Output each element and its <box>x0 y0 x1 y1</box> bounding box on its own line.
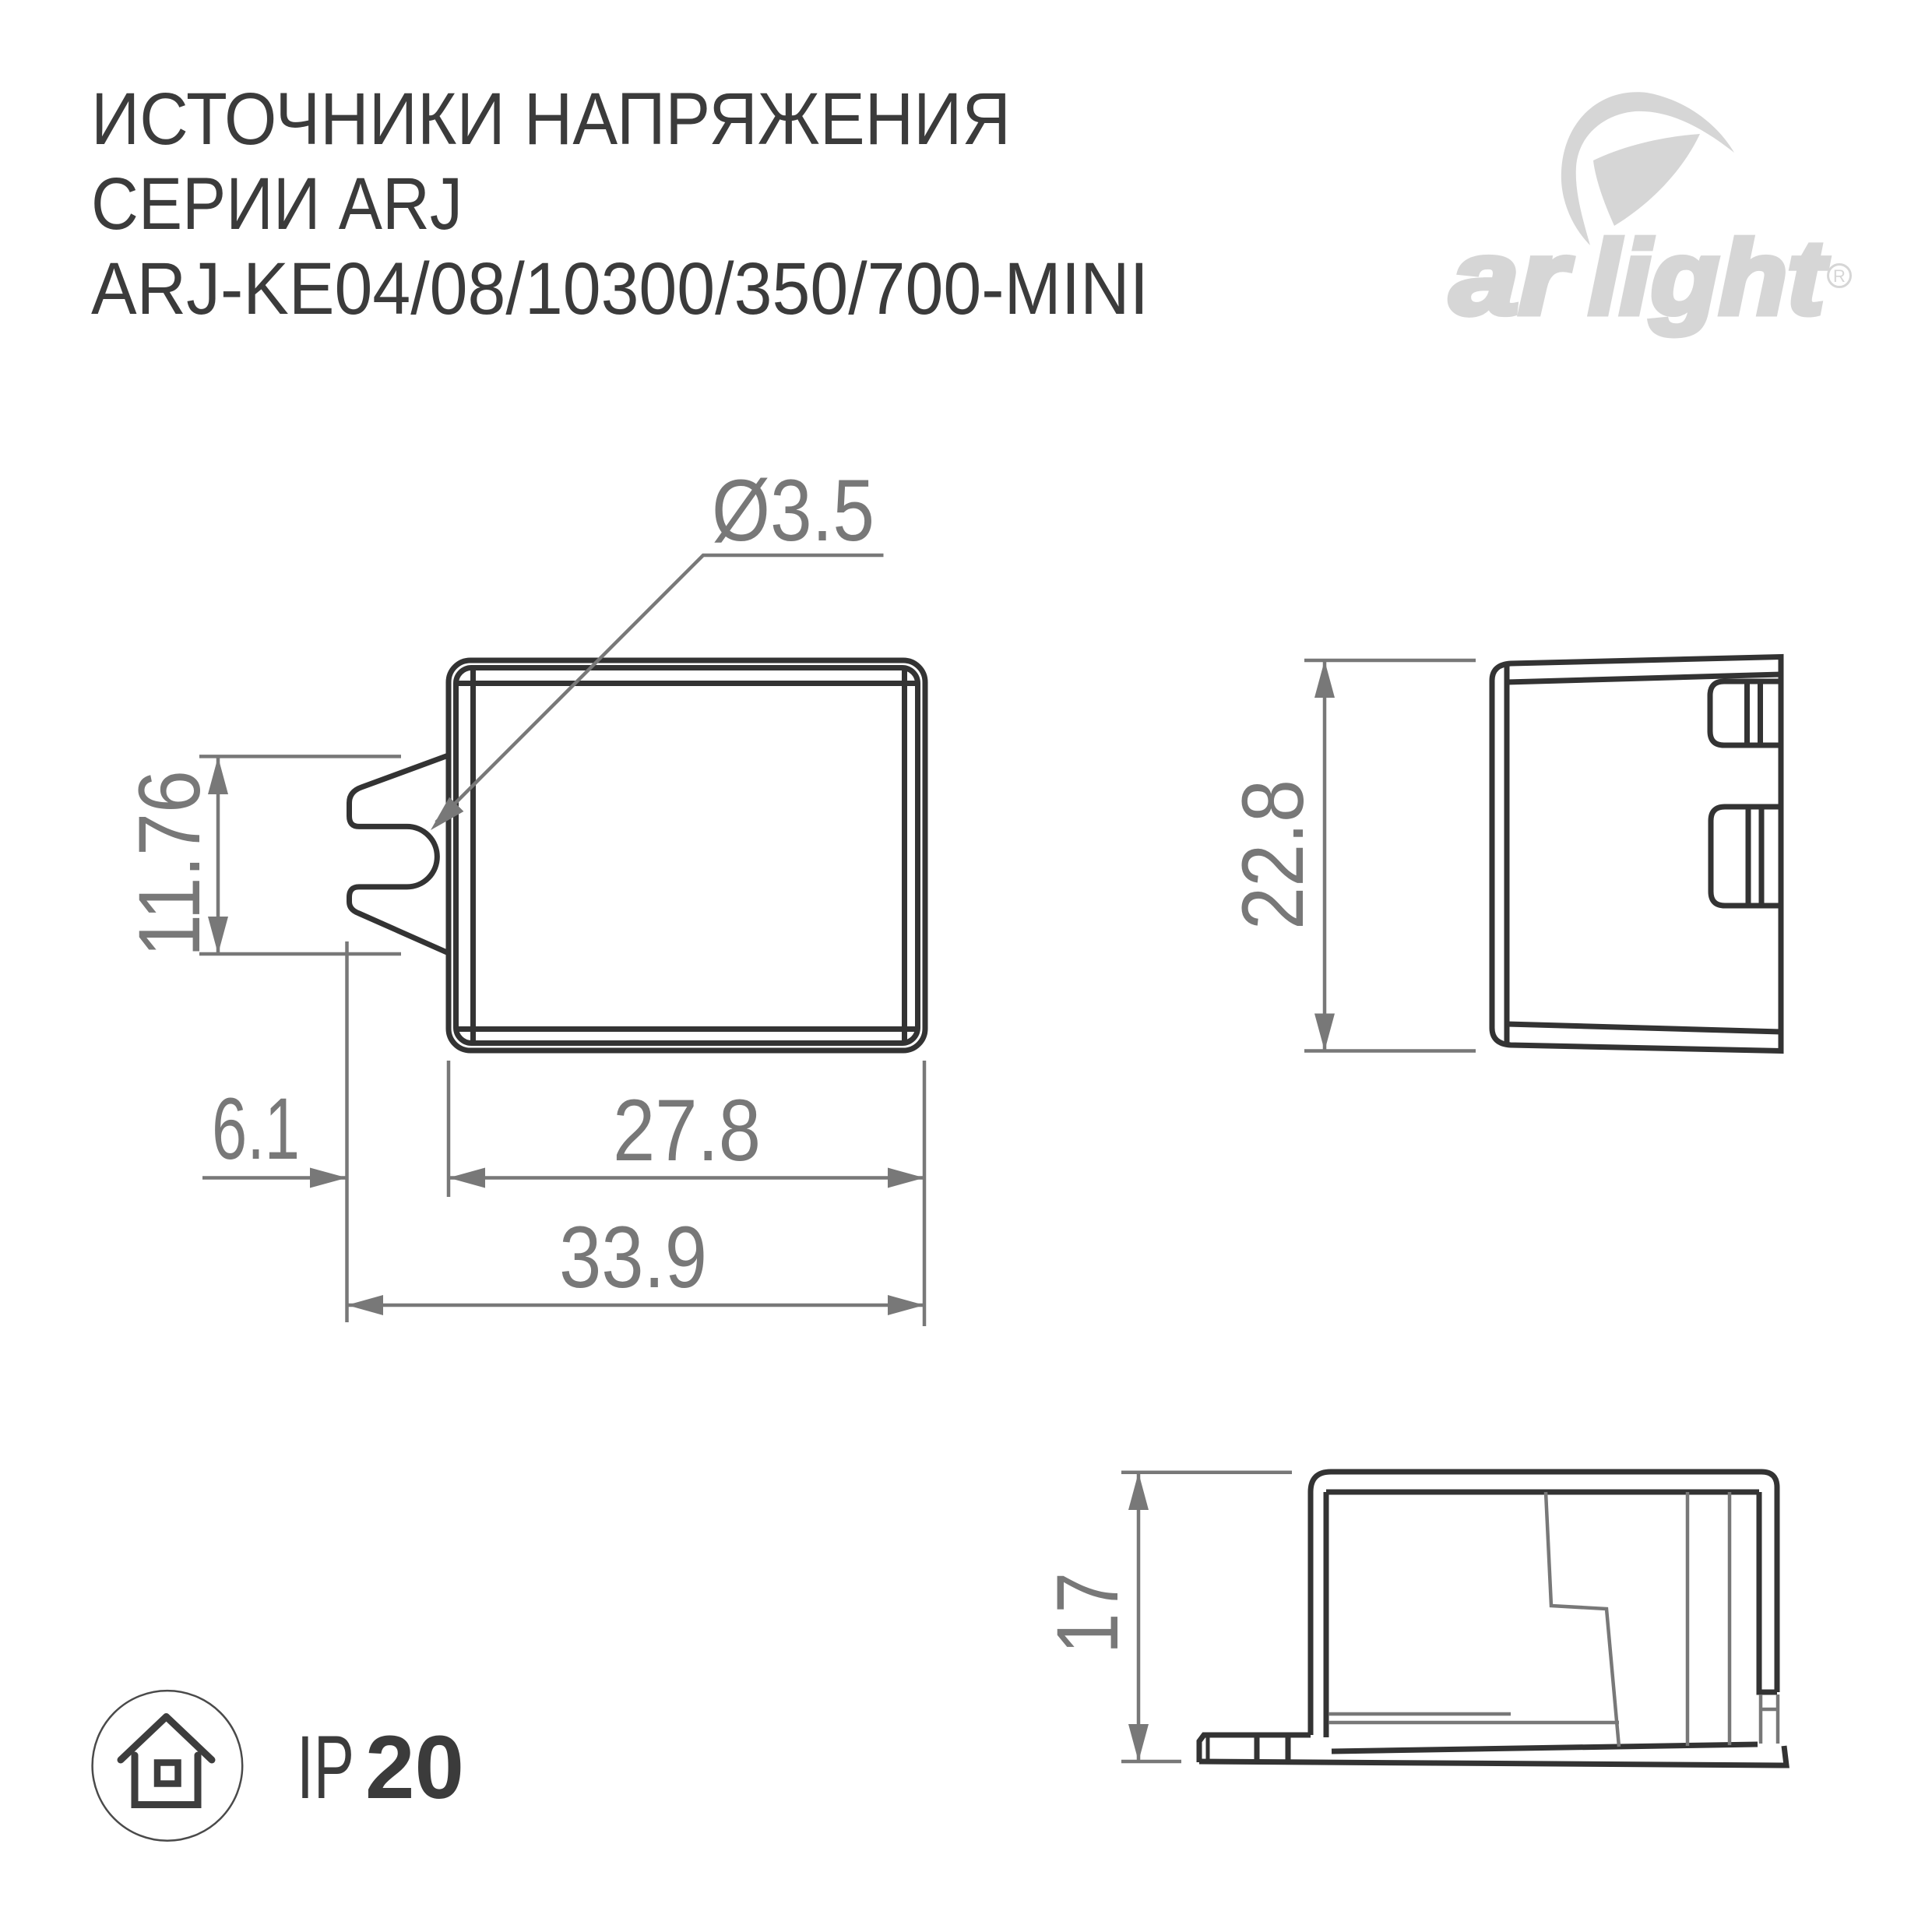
svg-text:6.1: 6.1 <box>212 1080 300 1177</box>
svg-text:ИСТОЧНИКИ НАПРЯЖЕНИЯ: ИСТОЧНИКИ НАПРЯЖЕНИЯ <box>91 78 1011 160</box>
svg-text:20: 20 <box>365 1718 464 1818</box>
svg-text:22.8: 22.8 <box>1224 779 1321 930</box>
svg-text:Ø3.5: Ø3.5 <box>712 462 875 559</box>
svg-text:11.76: 11.76 <box>121 770 218 957</box>
svg-text:17: 17 <box>1039 1572 1136 1654</box>
svg-text:light: light <box>1589 219 1828 336</box>
svg-text:R: R <box>1833 266 1846 286</box>
svg-text:IP: IP <box>297 1718 354 1818</box>
svg-text:ar: ar <box>1450 219 1573 336</box>
svg-text:СЕРИИ ARJ: СЕРИИ ARJ <box>91 163 463 245</box>
svg-text:ARJ-KE04/08/10300/350/700-MINI: ARJ-KE04/08/10300/350/700-MINI <box>91 248 1149 330</box>
svg-text:33.9: 33.9 <box>559 1209 707 1306</box>
svg-text:27.8: 27.8 <box>613 1082 761 1179</box>
